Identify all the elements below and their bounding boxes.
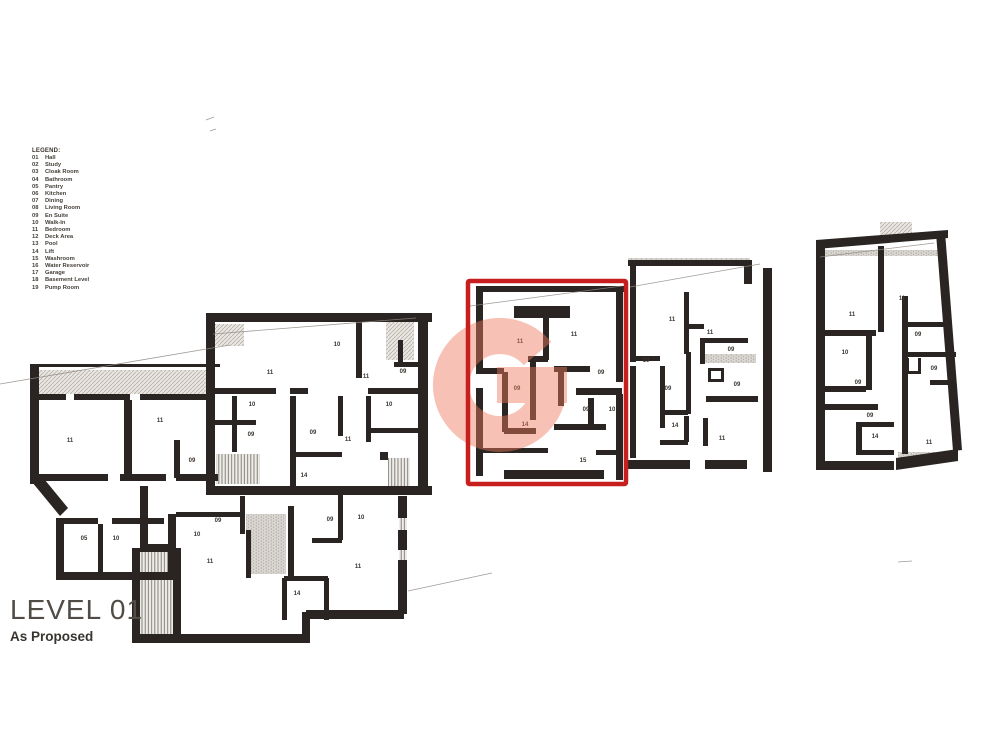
wall-segment xyxy=(206,313,215,488)
legend-item-label: Pool xyxy=(45,241,58,248)
projection-line xyxy=(630,264,760,287)
room-label: 14 xyxy=(294,591,301,597)
hatch-area xyxy=(246,514,286,574)
projection-line xyxy=(898,561,912,562)
wall-segment xyxy=(763,268,772,472)
wall-segment xyxy=(684,416,689,442)
room-label: 11 xyxy=(849,312,856,318)
floor-plan-page: 1111090510111011091009091110140910110910… xyxy=(0,0,1000,750)
wall-segment xyxy=(596,450,622,455)
legend-item: 14Lift xyxy=(32,249,89,256)
legend-item-code: 12 xyxy=(32,234,45,241)
legend-item-label: Kitchen xyxy=(45,191,66,198)
room-label: 10 xyxy=(643,358,650,364)
room-label: 11 xyxy=(926,440,933,446)
room-label: 11 xyxy=(345,437,352,443)
wall-segment xyxy=(368,388,422,394)
wall-segment xyxy=(398,560,407,614)
projection-line xyxy=(210,129,216,131)
wall-segment xyxy=(856,424,862,454)
legend-items: 01Hall02Study03Cloak Room04Bathroom05Pan… xyxy=(32,155,89,292)
wall-segment xyxy=(246,530,251,578)
room-label: 14 xyxy=(872,434,879,440)
wall-segment xyxy=(120,474,166,481)
wall-segment xyxy=(56,572,176,580)
wall-segment xyxy=(98,524,103,574)
wall-segment xyxy=(206,313,432,322)
wall-segment xyxy=(616,288,623,382)
wall-segment xyxy=(124,400,132,476)
wall-segment xyxy=(630,264,636,362)
wall-segment xyxy=(686,352,691,414)
hatch-area xyxy=(216,454,260,484)
hatch-area xyxy=(700,354,756,363)
wall-segment xyxy=(616,394,623,480)
room-label: 14 xyxy=(301,473,308,479)
room-label: 11 xyxy=(719,436,726,442)
wall-segment xyxy=(816,461,894,470)
room-label: 11 xyxy=(571,332,578,338)
room-label: 10 xyxy=(842,350,849,356)
room-label: 15 xyxy=(580,458,587,464)
legend-item-label: Pump Room xyxy=(45,285,79,292)
legend-item: 11Bedroom xyxy=(32,227,89,234)
wall-segment xyxy=(36,474,108,481)
legend-item-label: Bedroom xyxy=(45,227,70,234)
wall-segment xyxy=(906,371,921,374)
room-label: 09 xyxy=(327,517,334,523)
room-label: 11 xyxy=(267,370,274,376)
room-label: 09 xyxy=(734,382,741,388)
wall-segment xyxy=(856,422,894,427)
room-label: 11 xyxy=(899,296,906,302)
legend: LEGEND: 01Hall02Study03Cloak Room04Bathr… xyxy=(32,148,89,292)
wall-segment xyxy=(878,246,884,332)
wall-segment xyxy=(338,396,343,436)
legend-item-code: 15 xyxy=(32,256,45,263)
wall-segment xyxy=(112,518,164,524)
wall-segment xyxy=(288,506,294,580)
wall-segment xyxy=(902,296,908,356)
wall-segment xyxy=(306,610,404,619)
legend-item-label: Study xyxy=(45,162,61,169)
legend-item-code: 14 xyxy=(32,249,45,256)
wall-segment xyxy=(30,364,39,484)
wall-segment xyxy=(140,394,214,400)
wall-segment xyxy=(630,366,636,458)
legend-item-label: Hall xyxy=(45,155,56,162)
legend-item: 07Dining xyxy=(32,198,89,205)
room-label: 10 xyxy=(334,342,341,348)
legend-item-code: 07 xyxy=(32,198,45,205)
wall-segment xyxy=(312,538,342,543)
watermark-logo-g xyxy=(433,318,567,452)
legend-item-code: 06 xyxy=(32,191,45,198)
legend-item-label: En Suite xyxy=(45,213,68,220)
wall-segment xyxy=(284,576,328,581)
wall-segment xyxy=(628,260,752,266)
room-label: 09 xyxy=(931,366,938,372)
hatch-area xyxy=(399,550,407,560)
room-label: 11 xyxy=(157,418,164,424)
wall-segment xyxy=(418,316,428,492)
legend-item-code: 03 xyxy=(32,169,45,176)
legend-item: 05Pantry xyxy=(32,184,89,191)
wall-segment xyxy=(380,452,388,460)
legend-item-label: Garage xyxy=(45,270,65,277)
legend-item-code: 19 xyxy=(32,285,45,292)
wall-segment xyxy=(206,486,432,495)
room-label: 05 xyxy=(81,536,88,542)
legend-item-label: Water Reservoir xyxy=(45,263,89,270)
wall-segment xyxy=(700,338,705,364)
room-label: 09 xyxy=(867,413,874,419)
wall-segment xyxy=(62,518,98,524)
legend-item: 10Walk-In xyxy=(32,220,89,227)
wall-segment xyxy=(706,396,758,402)
title-block: LEVEL 01 As Proposed xyxy=(10,594,143,644)
legend-item-label: Washroom xyxy=(45,256,75,263)
legend-item-label: Bathroom xyxy=(45,177,72,184)
wall-segment xyxy=(56,518,64,576)
wall-segment xyxy=(744,260,752,284)
wall-segment xyxy=(324,578,329,620)
legend-item-label: Dining xyxy=(45,198,63,205)
room-label: 10 xyxy=(358,515,365,521)
room-label: 10 xyxy=(194,532,201,538)
room-label: 09 xyxy=(915,332,922,338)
room-label: 11 xyxy=(707,330,714,336)
wall-segment xyxy=(398,496,407,518)
cluster-unit-middle-right: 1111091009091411 xyxy=(628,258,772,472)
room-label: 09 xyxy=(310,430,317,436)
room-label: 11 xyxy=(355,564,362,570)
legend-item-code: 11 xyxy=(32,227,45,234)
wall-segment xyxy=(290,452,342,457)
wall-segment xyxy=(576,388,622,395)
legend-item-label: Basement Level xyxy=(45,277,89,284)
wall-segment xyxy=(721,368,724,382)
legend-item-label: Deck Area xyxy=(45,234,73,241)
wall-segment xyxy=(504,470,604,479)
legend-item: 19Pump Room xyxy=(32,285,89,292)
wall-segment xyxy=(140,544,176,552)
wall-segment xyxy=(705,460,747,469)
wall-segment xyxy=(140,486,148,550)
legend-item-code: 05 xyxy=(32,184,45,191)
legend-item-code: 08 xyxy=(32,205,45,212)
wall-segment xyxy=(660,440,688,445)
room-label: 11 xyxy=(67,438,74,444)
legend-item: 15Washroom xyxy=(32,256,89,263)
level-title: LEVEL 01 xyxy=(10,594,143,626)
wall-segment xyxy=(174,440,180,478)
room-label: 11 xyxy=(669,317,676,323)
watermark-crossbar xyxy=(497,367,567,403)
wall-segment xyxy=(703,418,708,446)
projection-line xyxy=(206,117,214,120)
room-label: 09 xyxy=(248,432,255,438)
wall-segment xyxy=(214,388,276,394)
legend-item-label: Lift xyxy=(45,249,54,256)
legend-item-label: Cloak Room xyxy=(45,169,79,176)
wall-segment xyxy=(816,240,825,466)
projection-line xyxy=(408,573,492,591)
legend-item-code: 01 xyxy=(32,155,45,162)
wall-segment xyxy=(338,492,343,540)
legend-item: 03Cloak Room xyxy=(32,169,89,176)
legend-item-code: 17 xyxy=(32,270,45,277)
room-label: 11 xyxy=(207,559,214,565)
status-label: As Proposed xyxy=(10,629,143,644)
wall-segment xyxy=(514,306,570,318)
legend-item: 01Hall xyxy=(32,155,89,162)
legend-item: 17Garage xyxy=(32,270,89,277)
wall-segment xyxy=(684,292,689,354)
wall-segment xyxy=(866,334,872,390)
cluster-unit-right: 111109100909091411 xyxy=(816,222,962,470)
legend-item: 18Basement Level xyxy=(32,277,89,284)
wall-segment xyxy=(74,394,130,400)
wall-segment xyxy=(660,366,665,428)
room-label: 09 xyxy=(583,407,590,413)
wall-segment xyxy=(398,340,403,364)
legend-item-label: Living Room xyxy=(45,205,80,212)
wall-segment xyxy=(660,410,688,415)
hatch-area xyxy=(388,458,410,486)
wall-segment xyxy=(398,530,407,550)
legend-item-code: 02 xyxy=(32,162,45,169)
wall-segment xyxy=(936,232,962,451)
wall-segment xyxy=(700,338,748,343)
wall-segment xyxy=(366,396,371,442)
wall-segment xyxy=(822,386,866,392)
wall-segment xyxy=(176,512,242,517)
legend-item-code: 04 xyxy=(32,177,45,184)
wall-segment xyxy=(856,450,894,455)
plan-svg: 1111090510111011091009091110140910110910… xyxy=(0,0,1000,750)
hatch-area xyxy=(38,370,214,394)
legend-item: 09En Suite xyxy=(32,213,89,220)
legend-item: 06Kitchen xyxy=(32,191,89,198)
legend-item: 04Bathroom xyxy=(32,177,89,184)
room-label: 09 xyxy=(189,458,196,464)
room-label: 09 xyxy=(598,370,605,376)
room-label: 10 xyxy=(113,536,120,542)
room-label: 09 xyxy=(215,518,222,524)
wall-segment xyxy=(688,324,704,329)
room-label: 14 xyxy=(672,423,679,429)
legend-item-code: 13 xyxy=(32,241,45,248)
hatch-area xyxy=(399,518,407,530)
legend-item: 16Water Reservoir xyxy=(32,263,89,270)
wall-segment xyxy=(628,460,690,469)
wall-segment xyxy=(132,634,302,643)
room-label: 10 xyxy=(386,402,393,408)
legend-item: 02Study xyxy=(32,162,89,169)
legend-item-code: 18 xyxy=(32,277,45,284)
wall-segment xyxy=(282,578,287,620)
room-label: 09 xyxy=(665,386,672,392)
room-label: 09 xyxy=(400,369,407,375)
wall-segment xyxy=(356,322,362,378)
room-label: 09 xyxy=(855,380,862,386)
room-label: 11 xyxy=(363,374,370,380)
legend-item-code: 09 xyxy=(32,213,45,220)
legend-item-code: 16 xyxy=(32,263,45,270)
room-label: 10 xyxy=(609,407,616,413)
room-label: 10 xyxy=(249,402,256,408)
room-label: 09 xyxy=(728,347,735,353)
wall-segment xyxy=(588,398,594,428)
legend-item-label: Pantry xyxy=(45,184,63,191)
legend-item-label: Walk-In xyxy=(45,220,65,227)
wall-segment xyxy=(290,396,296,486)
wall-segment xyxy=(30,364,220,367)
hatch-area xyxy=(214,324,244,346)
legend-item-code: 10 xyxy=(32,220,45,227)
legend-item: 13Pool xyxy=(32,241,89,248)
wall-segment xyxy=(173,548,181,642)
wall-segment xyxy=(36,394,66,400)
wall-segment xyxy=(554,424,606,430)
wall-segment xyxy=(214,420,256,425)
wall-segment xyxy=(370,428,422,433)
legend-title: LEGEND: xyxy=(32,148,89,154)
wall-segment xyxy=(290,388,308,394)
wall-segment xyxy=(822,404,878,410)
wall-segment xyxy=(240,496,245,534)
legend-item: 12Deck Area xyxy=(32,234,89,241)
legend-item: 08Living Room xyxy=(32,205,89,212)
